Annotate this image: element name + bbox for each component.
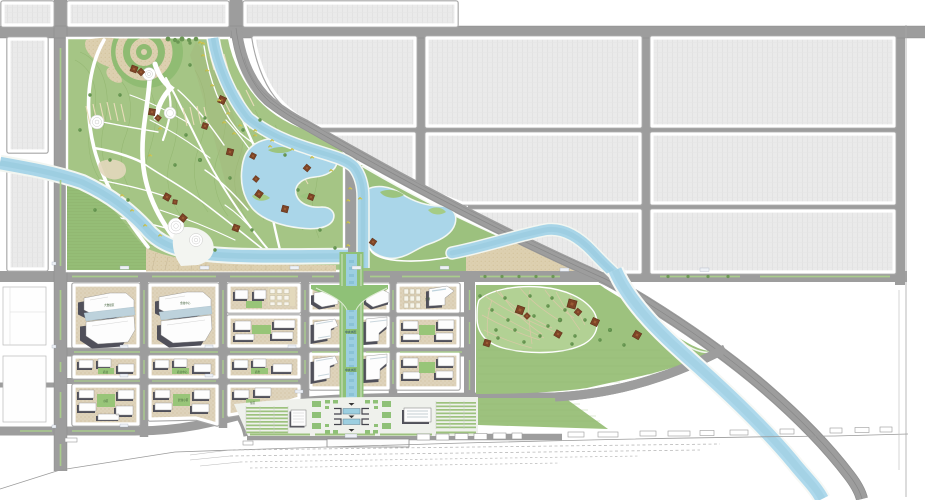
svg-text:小区: 小区 bbox=[103, 399, 109, 403]
svg-text:大数据区: 大数据区 bbox=[104, 303, 115, 307]
svg-text:商业: 商业 bbox=[103, 370, 109, 374]
svg-text:金融中心: 金融中心 bbox=[180, 301, 191, 305]
svg-text:住区: 住区 bbox=[250, 401, 256, 405]
svg-text:中央水街: 中央水街 bbox=[345, 368, 356, 372]
svg-text:商务: 商务 bbox=[255, 370, 261, 374]
svg-text:商业中心: 商业中心 bbox=[177, 370, 188, 374]
svg-text:中央水街: 中央水街 bbox=[345, 330, 356, 334]
svg-text:广场: 广场 bbox=[425, 297, 431, 301]
svg-text:居住小区: 居住小区 bbox=[178, 398, 189, 402]
